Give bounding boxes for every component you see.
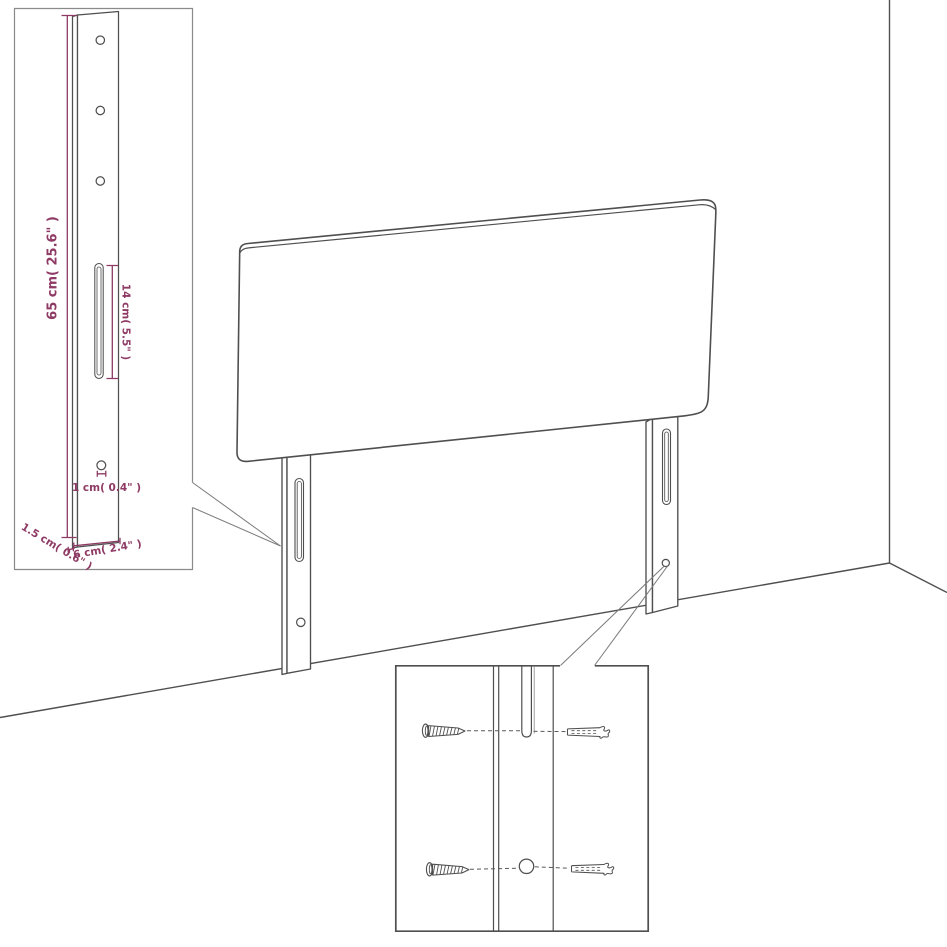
wall-plug-icon: [572, 863, 614, 875]
dimension-inset-box: 65 cm( 25.6" ) 14 cm( 5.5" ) 1 cm( 0.4" …: [15, 9, 193, 573]
headboard-dimension-diagram: 65 cm( 25.6" ) 14 cm( 5.5" ) 1 cm( 0.4" …: [0, 0, 947, 947]
right-leg-side-face: [646, 418, 653, 614]
headboard-front-face: [237, 200, 716, 462]
headboard-left-leg: [282, 449, 311, 675]
fixings-leg-strip: [494, 666, 554, 931]
diagram-canvas: 65 cm( 25.6" ) 14 cm( 5.5" ) 1 cm( 0.4" …: [0, 0, 947, 947]
wall-plug-icon: [568, 727, 610, 739]
fixing-pointer-right: [595, 567, 668, 666]
strip-slot: [522, 666, 532, 737]
right-leg-front-face: [653, 412, 678, 613]
headboard-right-leg: [646, 412, 678, 614]
floor-line-right: [890, 563, 947, 593]
dash-bottom-right: [535, 867, 569, 868]
inset-leg-drawing: [73, 12, 119, 549]
fixing-pointer-left: [561, 566, 665, 666]
inset-pointer-top: [193, 483, 281, 547]
screw-icon: [422, 724, 465, 737]
right-leg-screw-hole: [662, 559, 669, 566]
left-leg-screw-hole: [297, 618, 305, 626]
headboard-panel: [237, 200, 716, 462]
floor-line-left: [0, 563, 890, 718]
dimension-label-height: 65 cm( 25.6" ): [46, 216, 61, 320]
screw-icon: [426, 863, 469, 876]
fixings-inset-box: [396, 666, 648, 931]
strip-round-hole: [519, 859, 533, 873]
dimension-label-slot-length: 14 cm( 5.5" ): [120, 284, 132, 360]
left-leg-side-face: [282, 454, 287, 675]
dash-bottom-left: [470, 868, 518, 869]
callout-lines: [193, 483, 668, 666]
inset-pointer-bottom: [193, 508, 281, 547]
dimension-label-hole-diameter: 1 cm( 0.4" ): [72, 482, 141, 494]
inset-leg-side-face: [73, 15, 78, 548]
